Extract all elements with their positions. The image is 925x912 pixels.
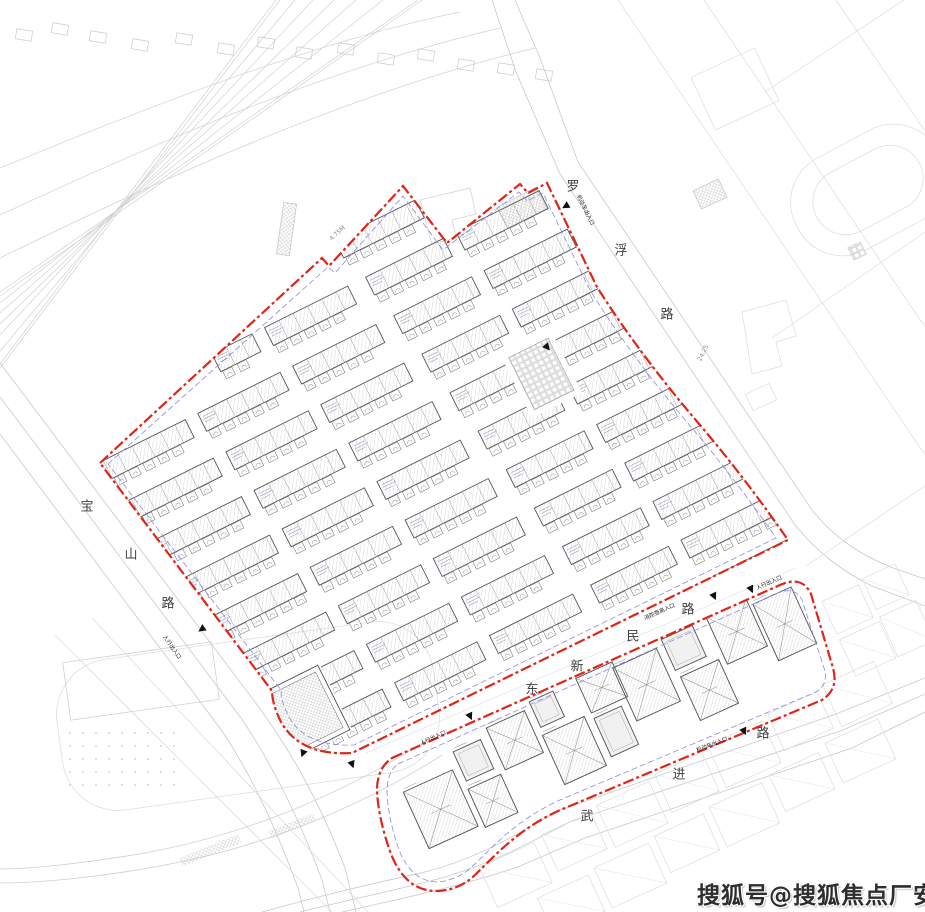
vehicle-entrance-icon [560, 201, 570, 211]
road-name-char-wujin-1: 进 [672, 769, 685, 782]
road-name-char-baoshan-2: 路 [161, 598, 174, 611]
paved-square-small [848, 242, 867, 261]
fire-entrance-icon [709, 592, 719, 602]
road-name-char-dongxinmin-3: 路 [681, 604, 694, 617]
road-name-char-dongxinmin-1: 新 [570, 661, 583, 674]
site-plan-canvas: 罗浮路宝山路东新民路武进路 机动车出入口人行出入口人行出入口消防登高入口人行出入… [0, 0, 925, 912]
watermark: 搜狐号@搜狐焦点厂安站 [697, 876, 925, 910]
pedestrian-entrance-icon [465, 712, 475, 722]
north-edge-small-buildings [15, 23, 552, 81]
road-name-char-luofu-0: 罗 [566, 181, 579, 194]
road-name-char-dongxinmin-2: 民 [626, 631, 639, 644]
east-blocks-lines [618, 0, 925, 566]
road-name-char-baoshan-0: 宝 [80, 501, 93, 514]
terrace-house-rows [47, 107, 823, 830]
site-plan-drawing [0, 0, 925, 912]
road-name-char-baoshan-1: 山 [124, 549, 137, 562]
main-parcel [47, 107, 823, 830]
road-name-char-luofu-1: 浮 [614, 245, 627, 258]
road-name-char-wujin-2: 路 [756, 728, 769, 741]
direction-entrance-icon [298, 749, 308, 759]
direction-entrance-icon [347, 760, 357, 770]
road-name-char-luofu-2: 路 [660, 309, 673, 322]
plaza-tree-dots [69, 732, 175, 786]
road-name-char-wujin-0: 武 [580, 811, 593, 824]
road-name-char-dongxinmin-0: 东 [525, 684, 538, 697]
